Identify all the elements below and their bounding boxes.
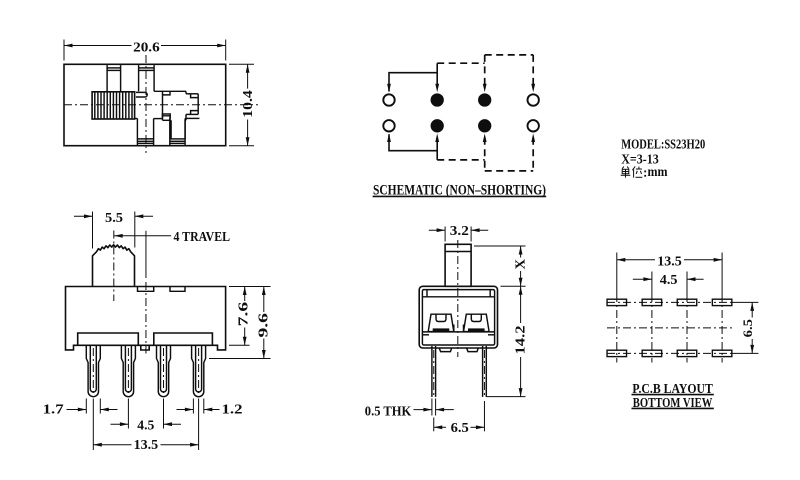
svg-text:7.6: 7.6 (237, 302, 252, 327)
svg-text:5.5: 5.5 (105, 211, 123, 226)
svg-text:4 TRAVEL: 4 TRAVEL (174, 230, 231, 245)
svg-text:MODEL:SS23H20: MODEL:SS23H20 (621, 137, 705, 152)
svg-text:13.5: 13.5 (134, 438, 159, 453)
svg-text:4.5: 4.5 (660, 273, 678, 288)
svg-text:6.5: 6.5 (451, 421, 469, 436)
svg-text:mm: mm (648, 165, 668, 180)
svg-text:6.5: 6.5 (740, 318, 755, 337)
svg-text:1.2: 1.2 (222, 403, 243, 418)
svg-text:1.7: 1.7 (43, 403, 64, 418)
svg-text:13.5: 13.5 (657, 255, 682, 270)
svg-text:20.6: 20.6 (133, 41, 160, 56)
svg-text:10.4: 10.4 (241, 90, 256, 118)
svg-text:4.5: 4.5 (137, 419, 154, 434)
svg-text:3.2: 3.2 (450, 224, 469, 239)
svg-text:0.5 THK: 0.5 THK (365, 404, 412, 419)
svg-text:9.6: 9.6 (257, 313, 272, 338)
svg-text:X: X (514, 259, 529, 270)
svg-text:14.2: 14.2 (513, 326, 528, 355)
